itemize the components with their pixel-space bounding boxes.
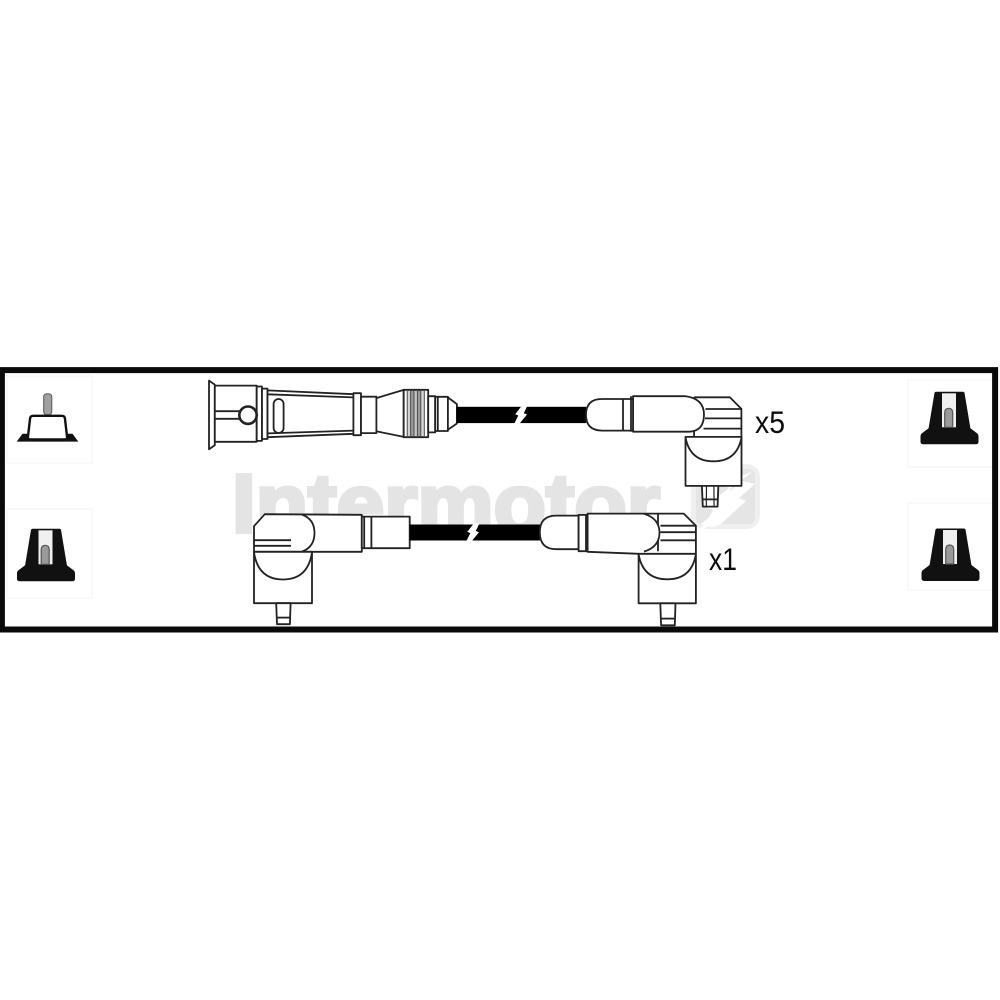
svg-text:x1: x1 (709, 541, 737, 577)
svg-text:x5: x5 (755, 404, 785, 440)
